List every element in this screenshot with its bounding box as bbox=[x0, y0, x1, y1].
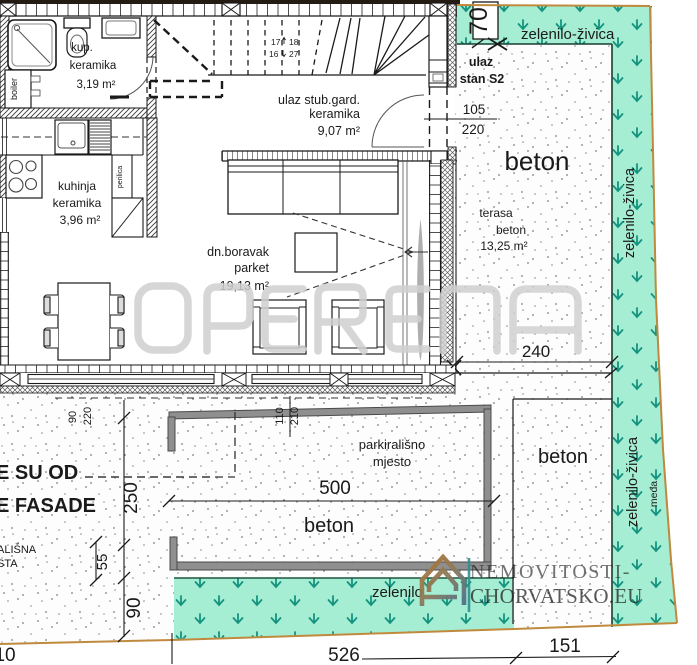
svg-text:151: 151 bbox=[549, 636, 581, 657]
svg-text:kup.: kup. bbox=[71, 42, 93, 54]
svg-text:ulaz stub.gard.: ulaz stub.gard. bbox=[278, 93, 360, 107]
svg-text:17: 17 bbox=[271, 37, 281, 47]
svg-text:ulaz: ulaz bbox=[469, 55, 493, 69]
svg-text:220: 220 bbox=[82, 407, 94, 425]
svg-text:zelenilo: zelenilo bbox=[372, 584, 423, 601]
svg-text:3,19 m²: 3,19 m² bbox=[77, 79, 116, 91]
svg-text:kuhinja: kuhinja bbox=[58, 179, 96, 193]
svg-text:perilica: perilica bbox=[117, 166, 124, 188]
svg-text:CHORVATSKO.EU: CHORVATSKO.EU bbox=[470, 584, 643, 608]
svg-text:70: 70 bbox=[465, 7, 493, 35]
svg-text:105: 105 bbox=[463, 102, 486, 117]
svg-text:stan S2: stan S2 bbox=[460, 72, 505, 86]
svg-text:parket: parket bbox=[234, 261, 269, 275]
svg-text:90: 90 bbox=[124, 597, 145, 618]
svg-text:27: 27 bbox=[289, 49, 299, 59]
svg-text:dn.boravak: dn.boravak bbox=[207, 245, 270, 259]
svg-text:250: 250 bbox=[121, 482, 142, 514]
svg-text:NEMOVITOSTI-: NEMOVITOSTI- bbox=[470, 561, 631, 583]
svg-text:zelenilo-živica: zelenilo-živica bbox=[521, 26, 615, 43]
svg-text:keramika: keramika bbox=[70, 60, 117, 72]
svg-text:526: 526 bbox=[328, 645, 360, 665]
svg-text:zelenilo-živica: zelenilo-živica bbox=[622, 167, 638, 258]
svg-text:ALIŠNA: ALIŠNA bbox=[0, 543, 37, 556]
svg-text:boiler: boiler bbox=[9, 78, 19, 100]
svg-text:16: 16 bbox=[269, 49, 279, 59]
svg-text:zelenilo-živica: zelenilo-živica bbox=[625, 436, 641, 527]
svg-text:E SU OD: E SU OD bbox=[0, 462, 78, 484]
svg-text:beton: beton bbox=[538, 446, 588, 468]
svg-text:beton: beton bbox=[504, 146, 569, 176]
svg-text:mjesto: mjesto bbox=[373, 454, 411, 469]
svg-text:240: 240 bbox=[522, 342, 550, 361]
svg-text:110: 110 bbox=[274, 407, 286, 425]
svg-text:beton: beton bbox=[496, 223, 526, 237]
svg-text:terasa: terasa bbox=[479, 206, 513, 220]
svg-text:55: 55 bbox=[94, 554, 111, 571]
svg-text:keramika: keramika bbox=[53, 196, 102, 210]
svg-text:500: 500 bbox=[319, 478, 351, 499]
svg-text:3,96 m²: 3,96 m² bbox=[60, 213, 101, 227]
svg-text:10: 10 bbox=[0, 645, 16, 665]
svg-text:beton: beton bbox=[304, 515, 354, 537]
svg-text:210: 210 bbox=[289, 407, 301, 425]
svg-text:E FASADE: E FASADE bbox=[0, 495, 96, 517]
svg-text:parkirališno: parkirališno bbox=[359, 437, 425, 452]
svg-text:220: 220 bbox=[462, 122, 485, 137]
svg-text:međa: međa bbox=[648, 481, 660, 507]
svg-text:9,07 m²: 9,07 m² bbox=[318, 124, 360, 138]
svg-text:18: 18 bbox=[289, 37, 299, 47]
svg-text:keramika: keramika bbox=[309, 107, 360, 121]
svg-text:13,25 m²: 13,25 m² bbox=[480, 239, 527, 253]
svg-text:90: 90 bbox=[67, 411, 79, 423]
svg-text:STA: STA bbox=[0, 558, 18, 570]
